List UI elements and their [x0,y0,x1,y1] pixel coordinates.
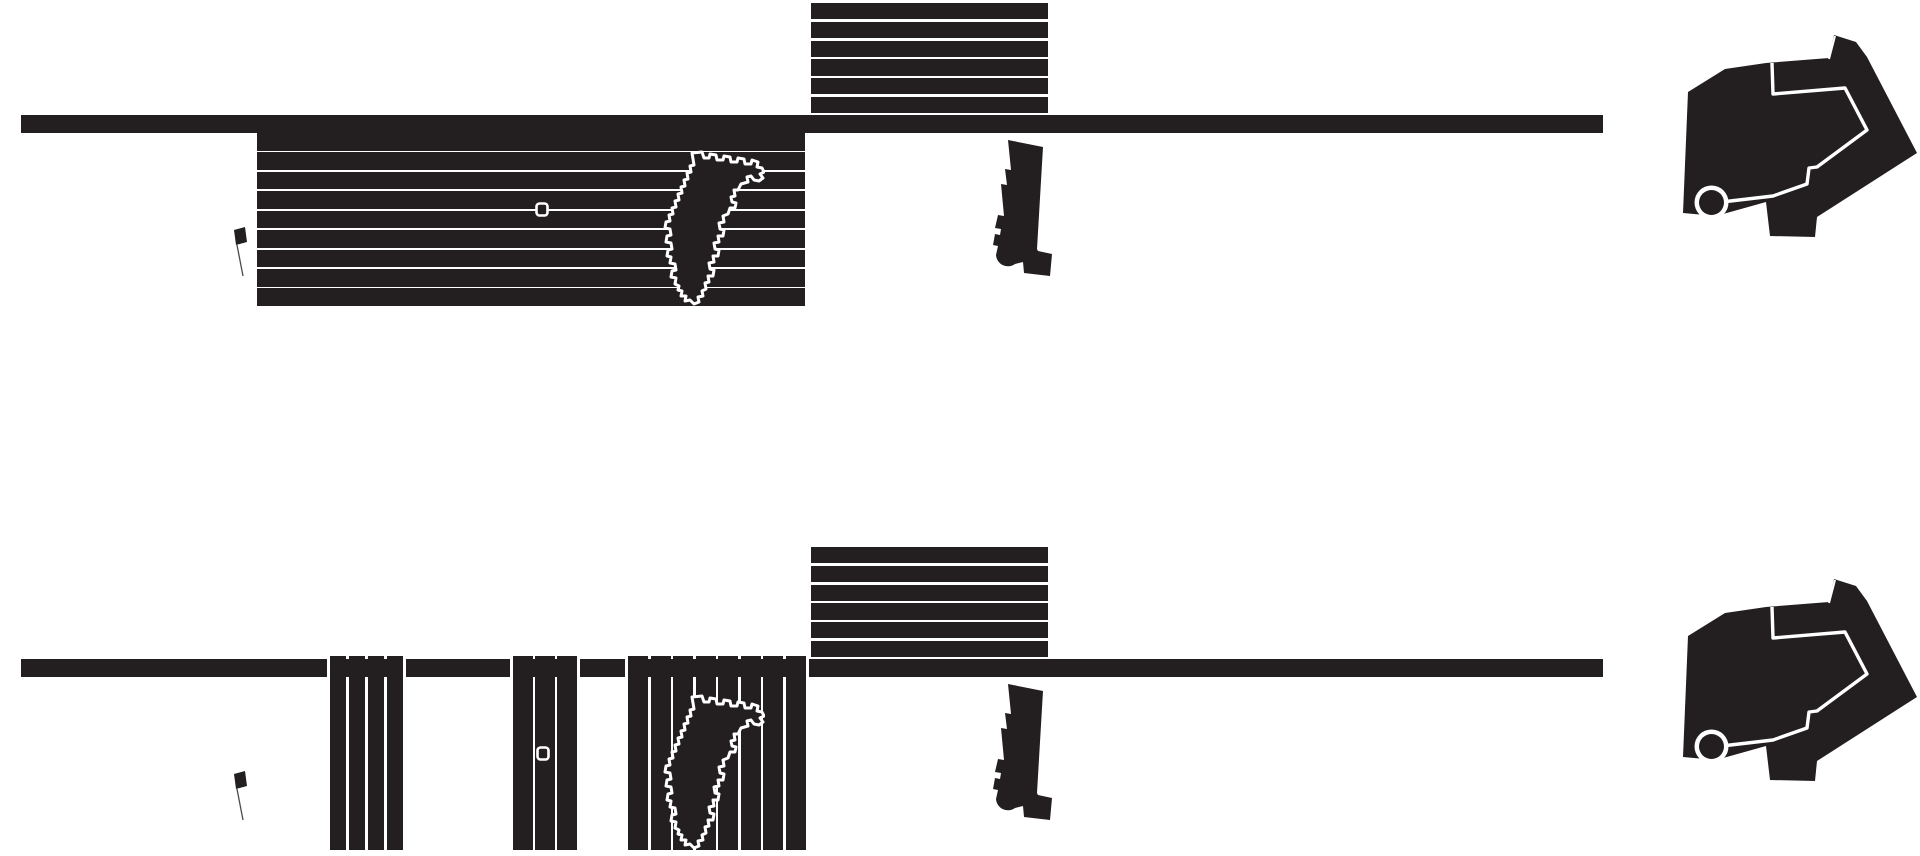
small-square-structure-a [535,202,549,217]
citadel-mass-a [1670,33,1920,243]
road-bar-a [21,115,1603,133]
road-gap [577,659,580,677]
cathedral-plan-a [661,150,765,308]
road-bar-b [21,659,1603,677]
tilted-slab-building-a [993,139,1053,277]
pier-block-1 [330,656,403,850]
road-gap [403,659,406,677]
upper-striped-block-a [811,3,1048,113]
tilted-slab-building-b [993,683,1053,821]
upper-striped-block-b [811,547,1048,657]
flag-marker-a [232,226,248,278]
small-square-structure-b [536,746,550,761]
cathedral-plan-b [661,694,765,852]
figure-ground-diagram [0,0,1920,856]
road-gap [806,659,809,677]
flag-marker-b [232,770,248,822]
citadel-mass-b [1670,577,1920,787]
